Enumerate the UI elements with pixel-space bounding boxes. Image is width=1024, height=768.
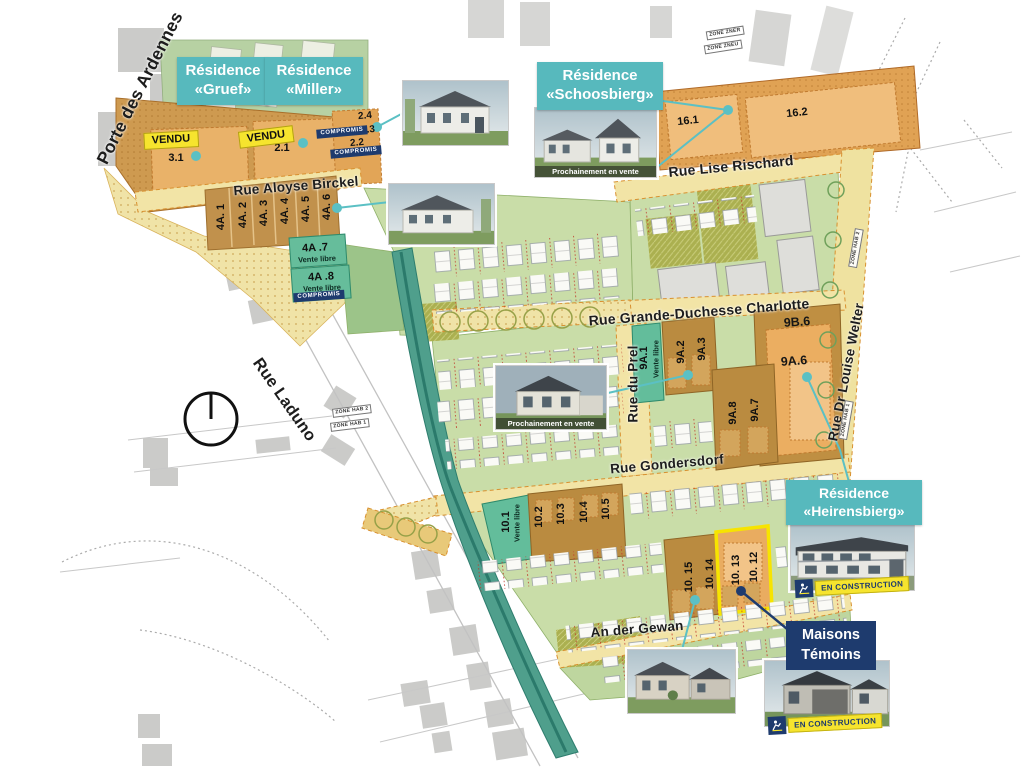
photo-caption: Prochainement en vente — [496, 418, 606, 429]
lot-label-4a-6: 4A. 6 — [321, 194, 333, 220]
vente-libre-label-9a-1: Vente libre — [652, 340, 661, 378]
lot-label-10-14: 10. 14 — [704, 559, 716, 590]
lot-label-4a-1: 4A. 1 — [215, 204, 227, 230]
residence-name: «Gruef» — [183, 81, 263, 100]
residence-name: Résidence — [183, 62, 263, 81]
lot-label-9a-1: 9A.1 — [638, 346, 650, 369]
lot-label-10-12: 10. 12 — [748, 552, 760, 583]
vendu-badge-lot3-1: VENDU — [143, 130, 198, 150]
lot-label-10-4: 10.4 — [578, 501, 590, 522]
lot-label-16-2: 16.2 — [786, 106, 809, 120]
lot-label-4a-8: 4A .8 — [308, 270, 334, 283]
residence-box-schoosbierg: Résidence «Schoosbierg» — [537, 62, 663, 110]
maisons-temoins-box: Maisons Témoins — [786, 621, 876, 670]
lot-label-10-5: 10.5 — [600, 498, 612, 519]
lot-label-10-1: 10.1 — [500, 511, 512, 532]
construction-worker-icon — [768, 716, 787, 735]
residence-box-gruef: Résidence «Gruef» — [177, 57, 269, 105]
render-photo-lot2 — [402, 80, 509, 146]
photo-caption: Prochainement en vente — [535, 166, 656, 177]
lot-label-3-1: 3.1 — [168, 152, 183, 164]
lot-label-9b-6: 9B.6 — [783, 314, 810, 330]
residence-box-heirensbierg: Résidence «Heirensbierg» — [786, 480, 922, 525]
en-construction-label: EN CONSTRUCTION — [815, 576, 910, 596]
lot-label-10-3: 10.3 — [555, 503, 567, 524]
lot-label-9a-8: 9A.8 — [727, 401, 739, 424]
render-photo-schoosbierg: Prochainement en vente — [534, 107, 657, 178]
site-plan-map: Prochainement en vente Prochainement en … — [0, 0, 1024, 768]
lot-label-10-2: 10.2 — [533, 506, 545, 527]
north-indicator — [185, 393, 237, 445]
construction-worker-icon — [795, 579, 814, 598]
lot-label-9a-6: 9A.6 — [780, 353, 807, 369]
render-photo-an-der-gewan — [627, 649, 736, 714]
lot-label-10-15: 10. 15 — [683, 562, 695, 593]
temoins-connector-dot — [736, 586, 746, 596]
lot-label-4a-3: 4A. 3 — [258, 200, 270, 226]
lot-label-2-4: 2.4 — [358, 110, 373, 122]
lot-label-4a-7: 4A .7 — [302, 241, 328, 254]
lot-label-4a-2: 4A. 2 — [237, 202, 249, 228]
render-photo-center: Prochainement en vente — [495, 365, 607, 430]
render-photo-lot4a — [388, 183, 495, 245]
en-construction-label: EN CONSTRUCTION — [788, 713, 883, 733]
lot-label-10-13: 10. 13 — [730, 555, 742, 586]
lot-label-9a-3: 9A.3 — [696, 337, 708, 360]
vente-libre-label-10-1: Vente libre — [513, 504, 522, 542]
lot-label-16-1: 16.1 — [677, 114, 700, 128]
lot-label-9a-7: 9A.7 — [749, 398, 761, 421]
residence-box-miller: Résidence «Miller» — [265, 57, 363, 105]
lot-label-4a-5: 4A. 5 — [300, 196, 312, 222]
lot-label-4a-4: 4A. 4 — [279, 198, 291, 224]
lot-label-9a-2: 9A.2 — [675, 340, 687, 363]
